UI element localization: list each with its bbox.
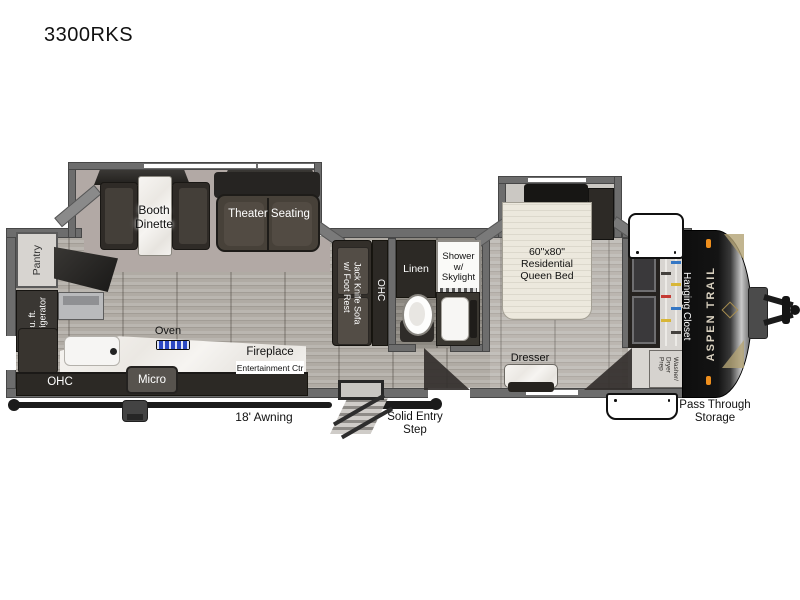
brand-label: ASPEN TRAIL: [705, 266, 718, 361]
awning-rail-left: [14, 402, 332, 408]
entertainment-center-label-box: Entertainment Ctr: [236, 361, 304, 374]
rear-window-gap: [6, 336, 16, 370]
sofa-ohc-label-wrap: OHC: [372, 252, 388, 328]
pass-through-door-top: [628, 213, 684, 259]
dresser-label: Dresser: [498, 352, 562, 365]
pass-through-door-bottom: [606, 393, 678, 420]
rear-appliance-detail: [63, 296, 99, 305]
wall-bath-left: [388, 238, 396, 352]
page-title: 3300RKS: [44, 24, 133, 47]
tongue-jack: [782, 296, 790, 324]
marker-light-bottom: [706, 376, 711, 385]
rear-cabinet: [18, 328, 58, 374]
wall-bedroom-left: [482, 238, 490, 352]
awning-label: 18' Awning: [214, 411, 314, 425]
hanging-closet-label: Hanging Closet: [680, 272, 692, 340]
kitchen-ohc-label: OHC: [38, 376, 82, 389]
pantry: Pantry: [16, 232, 58, 288]
wardrobe-mirror-bottom: [632, 296, 656, 344]
hanger-red-2: [661, 295, 671, 298]
awning-motor-detail: [127, 414, 143, 420]
sofa-label-wrap: Jack Knife Sofa w/ Foot Rest: [332, 244, 372, 342]
linen-closet: Linen: [396, 240, 436, 298]
microwave: Micro: [126, 366, 178, 394]
theater-seating-label: Theater Seating: [220, 208, 318, 221]
cooktop-grates: [157, 341, 189, 349]
hanger-dark-1: [661, 272, 671, 275]
micro-label: Micro: [138, 374, 166, 386]
hanging-closet-label-wrap: Hanging Closet: [678, 250, 694, 362]
toilet-bowl: [402, 294, 434, 336]
wall-bath-bottom-a: [388, 344, 416, 352]
booth-dinette-label: Booth Dinette: [118, 204, 190, 232]
entry-step-label: Solid Entry Step: [380, 411, 450, 437]
slide2-roof-strip: [528, 178, 586, 182]
jack-knife-sofa-label: Jack Knife Sofa w/ Foot Rest: [342, 262, 363, 325]
brand-wrap: ASPEN TRAIL: [702, 246, 720, 382]
bath-vanity: [436, 292, 480, 346]
queen-bed-label: 60"x80" Residential Queen Bed: [504, 246, 590, 282]
entertainment-center-label: Entertainment Ctr: [237, 363, 304, 373]
toilet-bowl-inner: [409, 302, 425, 326]
bath-sink: [441, 297, 469, 341]
bed-headboard-vent: [524, 184, 588, 204]
slide1-roof-strip-2: [258, 164, 314, 168]
wall-rear: [6, 228, 16, 398]
linen-label: Linen: [403, 263, 429, 275]
shower-label: Shower w/ Skylight: [442, 252, 475, 285]
hanger-yellow-2: [661, 319, 671, 322]
faucet: [110, 348, 117, 355]
marker-light-top: [706, 239, 711, 248]
door-latch-dot-2: [674, 251, 677, 254]
hitch-coupler: [790, 305, 800, 315]
rear-appliance: [58, 292, 104, 320]
door-latch-dot-3: [614, 399, 617, 402]
door-latch-dot-1: [636, 251, 639, 254]
fireplace-label: Fireplace: [238, 346, 302, 359]
pantry-label: Pantry: [31, 245, 43, 275]
dresser-base: [508, 382, 554, 392]
awning-motor-bracket: [122, 400, 148, 422]
theater-split-line: [267, 198, 269, 250]
door-latch-dot-4: [668, 399, 671, 402]
oven-label: Oven: [146, 325, 190, 338]
washer-dryer-prep-label: Washer/ Dryer Prep: [657, 357, 679, 381]
bath-faucet-panel: [470, 300, 477, 338]
slide1-roof-strip-1: [144, 164, 256, 168]
pass-through-storage-label: Pass Through Storage: [676, 399, 754, 425]
theater-seat: [216, 194, 320, 252]
cooktop: [156, 340, 190, 350]
sofa-ohc-label: OHC: [374, 279, 386, 301]
awning-rail-right-knob: [430, 398, 442, 410]
floorplan-canvas: 3300RKS Booth Dinette: [0, 0, 800, 600]
